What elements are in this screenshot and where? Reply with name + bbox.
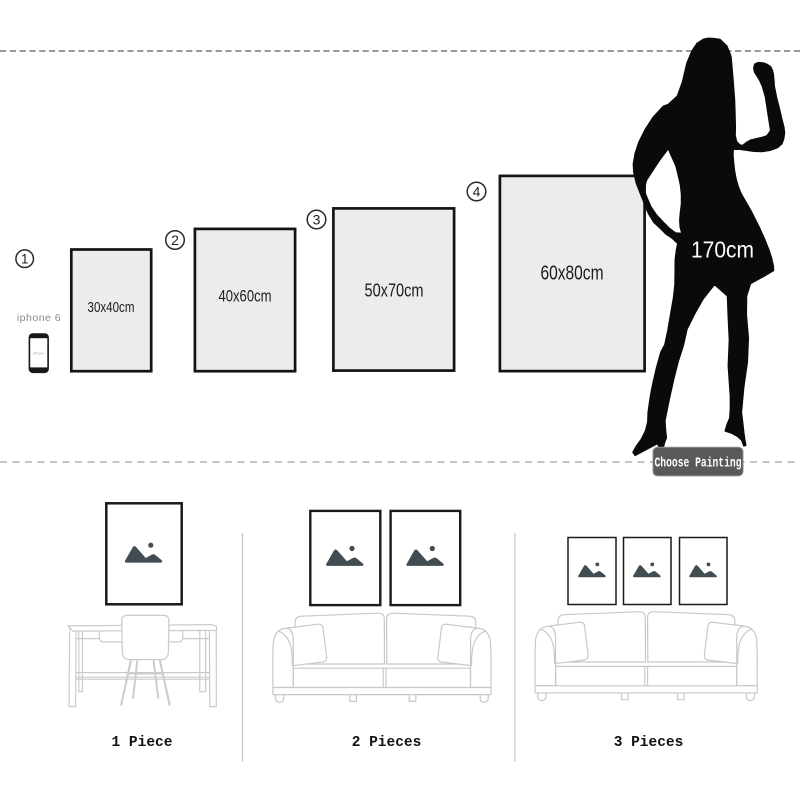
svg-text:50x70cm: 50x70cm [365, 280, 424, 301]
svg-text:1: 1 [21, 252, 29, 267]
svg-text:30x40cm: 30x40cm [88, 300, 135, 316]
svg-text:1 Piece: 1 Piece [112, 735, 173, 751]
svg-text:2 Pieces: 2 Pieces [352, 735, 422, 751]
svg-text:60x80cm: 60x80cm [541, 262, 604, 285]
svg-text:3: 3 [313, 212, 321, 228]
svg-text:3 Pieces: 3 Pieces [614, 735, 684, 751]
svg-text:Choose Painting: Choose Painting [655, 457, 742, 472]
svg-text:170cm: 170cm [691, 237, 754, 263]
svg-text:4: 4 [473, 184, 481, 200]
svg-text:2: 2 [171, 232, 179, 248]
svg-text:iPhone: iPhone [33, 352, 44, 356]
svg-text:40x60cm: 40x60cm [219, 288, 272, 306]
svg-text:iphone 6: iphone 6 [17, 312, 61, 324]
